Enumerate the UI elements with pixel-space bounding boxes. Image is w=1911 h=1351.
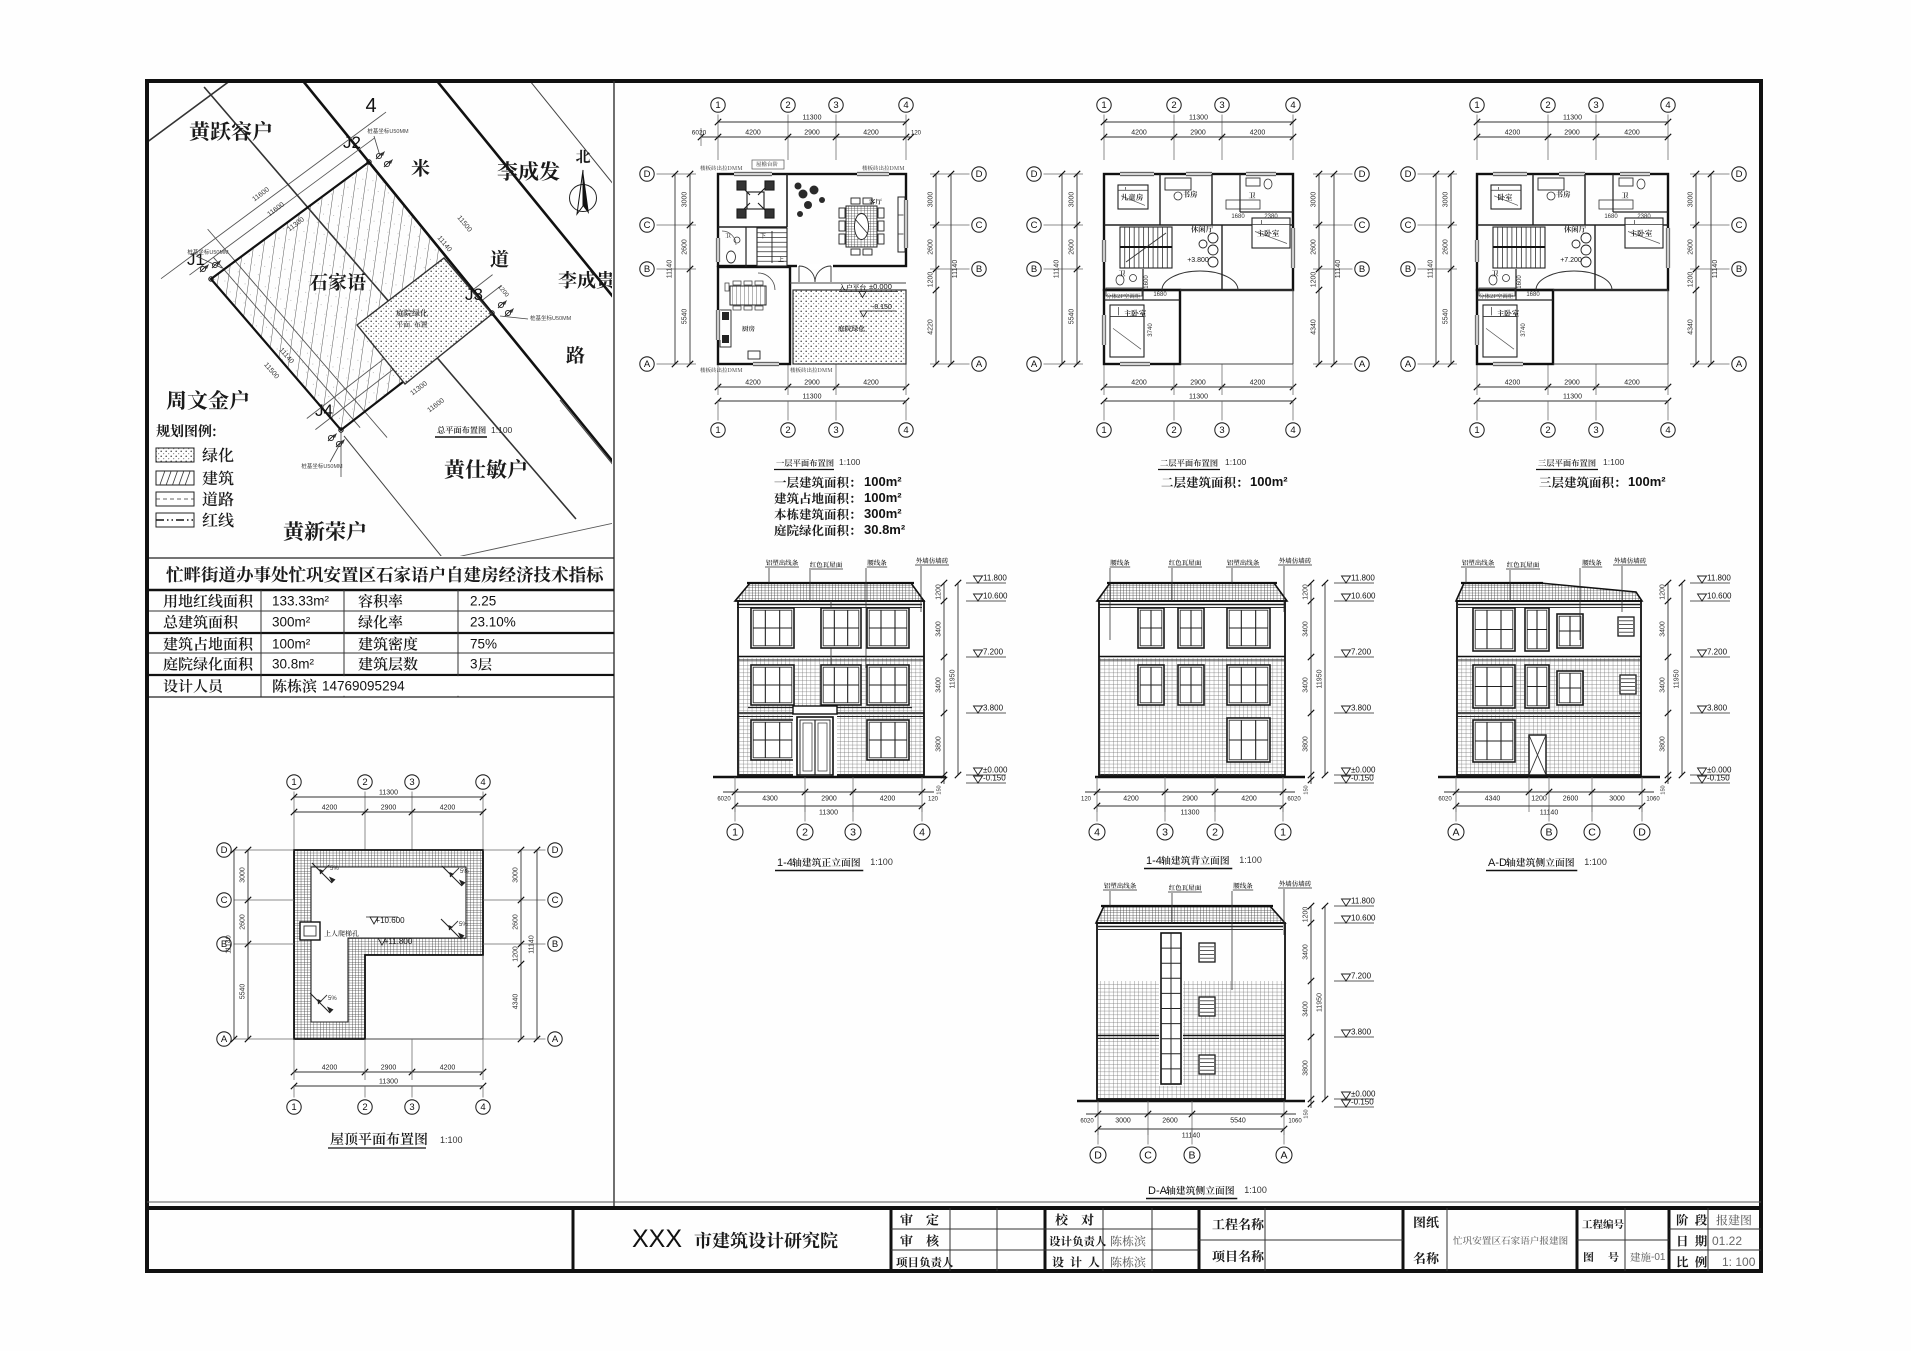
svg-text:3000: 3000	[1311, 192, 1318, 208]
svg-text:14769095294: 14769095294	[322, 679, 405, 694]
svg-text:3800: 3800	[1303, 736, 1310, 752]
svg-text:2.25: 2.25	[470, 594, 496, 609]
svg-text:D: D	[644, 169, 651, 180]
svg-text:2600: 2600	[1443, 239, 1450, 255]
svg-text:100m²: 100m²	[1250, 474, 1288, 489]
svg-text:4: 4	[1665, 100, 1670, 111]
svg-text:1:100: 1:100	[491, 425, 513, 435]
svg-text:桩基坐标U50MM: 桩基坐标U50MM	[530, 314, 572, 322]
svg-text:4340: 4340	[1311, 319, 1318, 335]
svg-text:11300: 11300	[1189, 394, 1208, 401]
svg-text:1: 1	[732, 827, 738, 839]
svg-text:3: 3	[850, 827, 856, 839]
svg-text:3000: 3000	[1443, 192, 1450, 208]
svg-text:1: 1	[291, 777, 296, 788]
svg-text:4340: 4340	[1688, 319, 1695, 335]
svg-text:C: C	[552, 895, 559, 906]
svg-text:A: A	[1280, 1150, 1287, 1162]
svg-text:100m²: 100m²	[864, 490, 902, 505]
svg-text:3: 3	[1219, 425, 1224, 436]
svg-text:11140: 11140	[529, 935, 536, 954]
svg-text:2: 2	[1545, 425, 1550, 436]
svg-text:3000: 3000	[682, 192, 689, 208]
svg-text:2: 2	[785, 100, 790, 111]
svg-text:1:100: 1:100	[1225, 457, 1247, 467]
svg-text:B: B	[1359, 264, 1365, 275]
svg-text:2900: 2900	[821, 796, 837, 803]
svg-text:B: B	[1545, 827, 1552, 839]
svg-text:1600: 1600	[1144, 275, 1150, 289]
svg-text:3000: 3000	[1115, 1118, 1131, 1125]
svg-text:B: B	[1031, 264, 1037, 275]
svg-text:C: C	[1405, 220, 1412, 231]
svg-text:3: 3	[1593, 425, 1598, 436]
svg-text:3.800: 3.800	[983, 704, 1004, 713]
svg-text:4220: 4220	[928, 319, 935, 335]
svg-text:7.200: 7.200	[1707, 648, 1728, 657]
svg-text:300m²: 300m²	[864, 506, 902, 521]
svg-text:1: 1	[1101, 425, 1106, 436]
svg-text:2380: 2380	[1264, 214, 1278, 220]
svg-text:B: B	[1736, 264, 1742, 275]
svg-text:D: D	[976, 169, 983, 180]
svg-text:1060: 1060	[1288, 1119, 1302, 1125]
svg-text:2900: 2900	[1564, 380, 1580, 387]
svg-text:C: C	[976, 220, 983, 231]
svg-text:1200: 1200	[928, 272, 935, 288]
svg-text:1680: 1680	[1153, 292, 1167, 298]
svg-text:100m²: 100m²	[864, 474, 902, 489]
svg-text:6020: 6020	[717, 797, 731, 803]
svg-text:A: A	[644, 359, 651, 370]
svg-text:3: 3	[1593, 100, 1598, 111]
svg-text:3400: 3400	[1660, 621, 1667, 637]
svg-text:4: 4	[365, 95, 376, 117]
svg-text:30.8m²: 30.8m²	[272, 657, 315, 672]
svg-text:10.600: 10.600	[1707, 592, 1732, 601]
svg-text:3: 3	[833, 100, 838, 111]
svg-text:11300: 11300	[379, 790, 398, 797]
svg-text:D: D	[1405, 169, 1412, 180]
svg-text:-01: -01	[1651, 1252, 1666, 1263]
svg-text:7.200: 7.200	[983, 648, 1004, 657]
svg-text:11950: 11950	[1317, 993, 1324, 1012]
svg-text:3400: 3400	[1303, 677, 1310, 693]
svg-text:D: D	[1359, 169, 1366, 180]
svg-text:3400: 3400	[1303, 944, 1310, 960]
svg-text:2600: 2600	[928, 239, 935, 255]
svg-text:100m²: 100m²	[1628, 474, 1666, 489]
svg-text:4200: 4200	[440, 805, 456, 812]
svg-text:上: 上	[778, 256, 784, 264]
svg-text:B: B	[552, 939, 558, 950]
svg-text:2: 2	[362, 777, 367, 788]
svg-text:C: C	[1736, 220, 1743, 231]
svg-text:2: 2	[362, 1102, 367, 1113]
svg-text:01.22: 01.22	[1712, 1234, 1742, 1248]
svg-text:A: A	[1736, 359, 1743, 370]
svg-text:3.800: 3.800	[1707, 704, 1728, 713]
svg-text:11300: 11300	[1563, 115, 1582, 122]
svg-text:A: A	[221, 1034, 228, 1045]
svg-text:3400: 3400	[936, 677, 943, 693]
svg-text:4200: 4200	[745, 380, 761, 387]
svg-text:5540: 5540	[240, 984, 247, 1000]
svg-text:300m²: 300m²	[272, 615, 311, 630]
svg-text:D: D	[1638, 827, 1646, 839]
svg-text:11.800: 11.800	[983, 574, 1007, 583]
svg-text:11140: 11140	[1182, 1133, 1201, 1140]
svg-text:3000: 3000	[240, 867, 247, 883]
svg-text:4200: 4200	[440, 1065, 456, 1072]
svg-text:4: 4	[919, 827, 925, 839]
svg-text:1:100: 1:100	[1603, 457, 1625, 467]
svg-text:4200: 4200	[1131, 380, 1147, 387]
svg-text:3800: 3800	[1303, 1060, 1310, 1076]
svg-text:D: D	[1031, 169, 1038, 180]
svg-text:A: A	[976, 359, 983, 370]
svg-text:2: 2	[802, 827, 808, 839]
svg-text:3740: 3740	[1148, 323, 1154, 337]
svg-text:1200: 1200	[1660, 584, 1667, 600]
svg-text:4200: 4200	[1624, 130, 1640, 137]
svg-text:11300: 11300	[803, 394, 822, 401]
svg-text:11300: 11300	[1563, 394, 1582, 401]
svg-text:1:100: 1:100	[870, 857, 893, 867]
svg-text:1200: 1200	[1688, 272, 1695, 288]
svg-text:10.600: 10.600	[1351, 914, 1376, 923]
svg-text:11300: 11300	[1189, 115, 1208, 122]
svg-text:1:100: 1:100	[1244, 1185, 1267, 1195]
svg-text:2380: 2380	[1637, 214, 1651, 220]
svg-text:-0.150: -0.150	[1707, 774, 1730, 783]
svg-text:2600: 2600	[1069, 239, 1076, 255]
svg-text:3000: 3000	[513, 867, 520, 883]
svg-text:11950: 11950	[1317, 669, 1324, 688]
svg-text:120: 120	[1081, 797, 1092, 803]
svg-text:4340: 4340	[1485, 796, 1501, 803]
svg-text:3: 3	[409, 777, 414, 788]
svg-text:J4: J4	[315, 401, 333, 420]
svg-text:11140: 11140	[1054, 260, 1061, 279]
svg-text:2900: 2900	[381, 1065, 397, 1072]
svg-text:D: D	[1094, 1150, 1102, 1162]
svg-text:4200: 4200	[880, 796, 896, 803]
svg-text:5540: 5540	[1069, 309, 1076, 325]
svg-text:2600: 2600	[513, 914, 520, 930]
svg-text:2900: 2900	[381, 805, 397, 812]
svg-text:+3.800: +3.800	[1187, 257, 1209, 264]
svg-text:2900: 2900	[1190, 380, 1206, 387]
svg-text:1:100: 1:100	[839, 457, 861, 467]
svg-text:C: C	[1359, 220, 1366, 231]
svg-text:4: 4	[480, 1102, 485, 1113]
svg-text:B: B	[976, 264, 982, 275]
svg-text:3: 3	[1162, 827, 1168, 839]
svg-text:4: 4	[903, 425, 908, 436]
svg-text:4200: 4200	[1505, 130, 1521, 137]
svg-text:3800: 3800	[1660, 736, 1667, 752]
svg-text:1:100: 1:100	[440, 1135, 463, 1145]
svg-text:3400: 3400	[936, 621, 943, 637]
svg-text:2900: 2900	[804, 380, 820, 387]
svg-text:5%: 5%	[460, 869, 469, 875]
svg-text:6020: 6020	[1438, 797, 1452, 803]
svg-text:1: 100: 1: 100	[1722, 1255, 1756, 1269]
svg-text:C: C	[644, 220, 651, 231]
svg-text:+7.200: +7.200	[1560, 257, 1582, 264]
svg-text:11.800: 11.800	[1351, 574, 1375, 583]
svg-text:3000: 3000	[1609, 796, 1625, 803]
svg-text:100m²: 100m²	[272, 637, 311, 652]
svg-text:2: 2	[1171, 100, 1176, 111]
svg-text:11950: 11950	[1674, 669, 1681, 688]
svg-text:1200: 1200	[1311, 272, 1318, 288]
svg-text:7.200: 7.200	[1351, 972, 1372, 981]
svg-text:150: 150	[1304, 785, 1310, 794]
svg-text:4200: 4200	[322, 1065, 338, 1072]
svg-text:桩基坐标U50MM: 桩基坐标U50MM	[187, 248, 229, 256]
svg-text:11300: 11300	[819, 810, 838, 817]
svg-text:A: A	[552, 1034, 559, 1045]
svg-text:10.600: 10.600	[1351, 592, 1376, 601]
svg-text:2600: 2600	[1162, 1118, 1178, 1125]
svg-text:11300: 11300	[1181, 810, 1200, 817]
svg-text:1200: 1200	[1531, 796, 1547, 803]
svg-text:B: B	[644, 264, 650, 275]
svg-text:4200: 4200	[1624, 380, 1640, 387]
svg-text:1200: 1200	[1303, 907, 1310, 923]
svg-text:5540: 5540	[1230, 1118, 1246, 1125]
svg-text:5%: 5%	[328, 996, 337, 1002]
svg-text:±0.000: ±0.000	[869, 282, 892, 291]
svg-text:4200: 4200	[863, 130, 879, 137]
svg-text:3400: 3400	[1303, 621, 1310, 637]
svg-text:4: 4	[903, 100, 908, 111]
svg-text:10.600: 10.600	[983, 592, 1008, 601]
svg-text:5%: 5%	[459, 922, 468, 928]
svg-text:C: C	[1144, 1150, 1152, 1162]
svg-text:2600: 2600	[1688, 239, 1695, 255]
svg-text:6020: 6020	[692, 130, 707, 137]
svg-text:-0.150: -0.150	[872, 304, 892, 311]
svg-text:2600: 2600	[240, 914, 247, 930]
svg-text:11140: 11140	[1712, 260, 1719, 279]
svg-text:A: A	[1359, 359, 1366, 370]
svg-text:1200: 1200	[513, 946, 520, 962]
svg-text:J2: J2	[343, 133, 361, 152]
svg-text:A: A	[1405, 359, 1412, 370]
svg-text:D-A: D-A	[1148, 1185, 1168, 1197]
svg-text:3740: 3740	[1521, 323, 1527, 337]
svg-text:1200: 1200	[936, 584, 943, 600]
svg-text:11140: 11140	[952, 260, 959, 279]
svg-text:B: B	[1405, 264, 1411, 275]
svg-text:2: 2	[1171, 425, 1176, 436]
svg-text:3: 3	[833, 425, 838, 436]
svg-text:4200: 4200	[1123, 796, 1139, 803]
svg-text:3.800: 3.800	[1351, 704, 1372, 713]
svg-text:B: B	[1188, 1150, 1195, 1162]
svg-text:1: 1	[1101, 100, 1106, 111]
svg-text:150: 150	[1304, 1109, 1310, 1118]
svg-text:120: 120	[911, 131, 922, 137]
svg-text:1600: 1600	[1517, 275, 1523, 289]
svg-text:4200: 4200	[1505, 380, 1521, 387]
svg-text:4: 4	[1290, 100, 1295, 111]
svg-text:1: 1	[715, 100, 720, 111]
svg-text:2600: 2600	[682, 239, 689, 255]
svg-text:3: 3	[470, 657, 478, 672]
svg-text:3000: 3000	[1688, 192, 1695, 208]
svg-text:2600: 2600	[1311, 239, 1318, 255]
svg-text:桩基坐标U50MM: 桩基坐标U50MM	[301, 462, 343, 470]
svg-text:1060: 1060	[1646, 797, 1660, 803]
svg-text:1: 1	[1280, 827, 1286, 839]
svg-text:4: 4	[1665, 425, 1670, 436]
svg-text:4200: 4200	[1250, 130, 1266, 137]
svg-text:150: 150	[937, 785, 943, 794]
svg-text:4200: 4200	[1241, 796, 1257, 803]
svg-text:5540: 5540	[1443, 309, 1450, 325]
svg-text:2600: 2600	[1563, 796, 1579, 803]
svg-text:11140: 11140	[1428, 260, 1435, 279]
svg-text:1: 1	[715, 425, 720, 436]
svg-text:1680: 1680	[1604, 214, 1618, 220]
svg-text:A: A	[1452, 827, 1459, 839]
svg-text:3: 3	[409, 1102, 414, 1113]
svg-text:4200: 4200	[322, 805, 338, 812]
svg-text:4: 4	[1094, 827, 1100, 839]
svg-text:11300: 11300	[803, 115, 822, 122]
svg-text:11950: 11950	[950, 669, 957, 688]
svg-text:J3: J3	[465, 285, 483, 304]
svg-text:3: 3	[1219, 100, 1224, 111]
svg-text:1: 1	[1474, 100, 1479, 111]
svg-text:133.33m²: 133.33m²	[272, 594, 330, 609]
svg-text:4200: 4200	[863, 380, 879, 387]
svg-text:1: 1	[1474, 425, 1479, 436]
svg-text:11.800: 11.800	[1351, 897, 1375, 906]
svg-text:A: A	[1031, 359, 1038, 370]
svg-text:1-4: 1-4	[1146, 855, 1162, 867]
svg-text:3400: 3400	[1660, 677, 1667, 693]
svg-text:1680: 1680	[1526, 292, 1540, 298]
svg-text:11140: 11140	[667, 260, 674, 279]
svg-text:2900: 2900	[1182, 796, 1198, 803]
svg-text:11300: 11300	[379, 1079, 398, 1086]
svg-text:5%: 5%	[330, 866, 339, 872]
svg-text:1:100: 1:100	[1239, 855, 1262, 865]
svg-text:11.800: 11.800	[1707, 574, 1731, 583]
svg-text:D: D	[221, 845, 228, 856]
svg-text:C: C	[221, 895, 228, 906]
svg-text:4200: 4200	[1250, 380, 1266, 387]
svg-text:6020: 6020	[1080, 1119, 1094, 1125]
svg-text:2900: 2900	[1564, 130, 1580, 137]
svg-text:2: 2	[785, 425, 790, 436]
svg-text:A-D: A-D	[1488, 857, 1507, 869]
svg-text:C: C	[1031, 220, 1038, 231]
svg-text:11140: 11140	[1335, 260, 1342, 279]
svg-text:1: 1	[291, 1102, 296, 1113]
svg-text:1200: 1200	[1303, 584, 1310, 600]
svg-text:11140: 11140	[226, 935, 233, 954]
svg-text:D: D	[552, 845, 559, 856]
svg-text:-0.150: -0.150	[1351, 774, 1374, 783]
svg-text:4: 4	[1290, 425, 1295, 436]
svg-text:C: C	[1588, 827, 1596, 839]
svg-text:1-4: 1-4	[777, 857, 793, 869]
svg-text:1:100: 1:100	[1584, 857, 1607, 867]
svg-text:3000: 3000	[928, 192, 935, 208]
svg-text:4200: 4200	[1131, 130, 1147, 137]
svg-text:4: 4	[480, 777, 485, 788]
svg-text:3400: 3400	[1303, 1001, 1310, 1017]
svg-text:2900: 2900	[1190, 130, 1206, 137]
svg-text:D: D	[1736, 169, 1743, 180]
svg-text:1680: 1680	[1231, 214, 1245, 220]
svg-text:4340: 4340	[513, 994, 520, 1010]
svg-text:150: 150	[1661, 785, 1667, 794]
svg-text:23.10%: 23.10%	[470, 615, 516, 630]
svg-text:3.800: 3.800	[1351, 1028, 1372, 1037]
svg-text:2900: 2900	[804, 130, 820, 137]
svg-text:下: 下	[760, 233, 766, 240]
svg-text:3800: 3800	[936, 736, 943, 752]
svg-text:桩基坐标U50MM: 桩基坐标U50MM	[367, 127, 409, 135]
svg-text:30.8m²: 30.8m²	[864, 522, 906, 537]
svg-text:2: 2	[1212, 827, 1218, 839]
svg-text:4200: 4200	[745, 130, 761, 137]
svg-text:-0.150: -0.150	[1351, 1098, 1374, 1107]
svg-text:120: 120	[928, 797, 939, 803]
svg-text:7.200: 7.200	[1351, 648, 1372, 657]
svg-text:2: 2	[1545, 100, 1550, 111]
svg-text:75%: 75%	[470, 637, 497, 652]
svg-text:3000: 3000	[1069, 192, 1076, 208]
svg-text:5540: 5540	[682, 309, 689, 325]
svg-text:6020: 6020	[1287, 797, 1301, 803]
svg-text:XXX: XXX	[632, 1225, 682, 1253]
svg-text:-0.150: -0.150	[983, 774, 1006, 783]
svg-text:4300: 4300	[762, 796, 778, 803]
